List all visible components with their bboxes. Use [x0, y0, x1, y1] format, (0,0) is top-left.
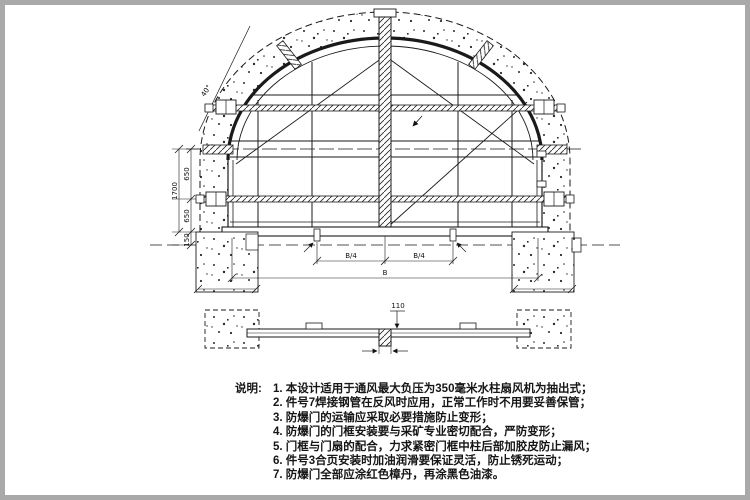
notes-label: 说明: — [235, 382, 271, 396]
note-line: 3. 防爆门的运输应采取必要措施防止变形； — [273, 411, 735, 425]
sill-pin-left — [314, 229, 320, 241]
note-line: 4. 防爆门的门框安装要与采矿专业密切配合，严防变形； — [273, 425, 735, 439]
sill-pin-right — [450, 229, 456, 241]
dim-b-total: B — [383, 269, 388, 277]
notes-indent — [235, 440, 271, 454]
hinge-upper — [537, 151, 546, 157]
notes-indent — [235, 411, 271, 425]
sill-beam — [222, 227, 548, 236]
brace-leader-arrow — [413, 116, 422, 126]
section-width-dimension — [362, 346, 408, 354]
section-view: 110 — [205, 302, 571, 354]
notes-block: 说明: 1. 本设计适用于通风最大负压为350毫米水柱扇风机为抽出式； 2. 件… — [235, 382, 735, 483]
front-elevation-view: 40° — [150, 9, 620, 293]
hinge-lower — [537, 181, 546, 187]
dim-left-total: 1700 — [171, 182, 179, 200]
note-line: 7. 防爆门全部应涂红色樟丹，再涂黑色油漆。 — [273, 468, 735, 482]
notes-indent — [235, 396, 271, 410]
notes-indent — [235, 425, 271, 439]
pin-leader-right — [457, 243, 466, 252]
dim-b4-right: B/4 — [413, 252, 425, 260]
foundation-pier-right — [510, 232, 581, 293]
dim-angle: 40° — [200, 83, 214, 98]
anchor-bolt-left — [203, 145, 233, 154]
note-line: 1. 本设计适用于通风最大负压为350毫米水柱扇风机为抽出式； — [273, 382, 735, 396]
notes-indent — [235, 454, 271, 468]
dim-section-height: 110 — [391, 302, 404, 310]
note-line: 5. 门框与门扇的配合，力求紧密门框中柱后部加胶皮防止漏风； — [273, 440, 735, 454]
foundation-pier-left — [194, 232, 260, 293]
pin-leader-left — [304, 243, 313, 252]
section-tab-left — [306, 323, 322, 329]
dim-left-lower: 650 — [183, 209, 191, 222]
drawing-canvas: 40° — [0, 0, 750, 500]
dim-left-upper: 650 — [183, 167, 191, 180]
section-center-column — [379, 329, 391, 346]
notes-indent — [235, 468, 271, 482]
dim-left-floor: 150 — [183, 233, 191, 246]
section-tab-right — [460, 323, 476, 329]
dim-b4-left: B/4 — [345, 252, 357, 260]
note-line: 6. 件号3合页安装时加油润滑要保证灵活，防止锈死运动； — [273, 454, 735, 468]
note-line: 2. 件号7焊接钢管在反风时应用，正常工作时不用要妥善保管； — [273, 396, 735, 410]
